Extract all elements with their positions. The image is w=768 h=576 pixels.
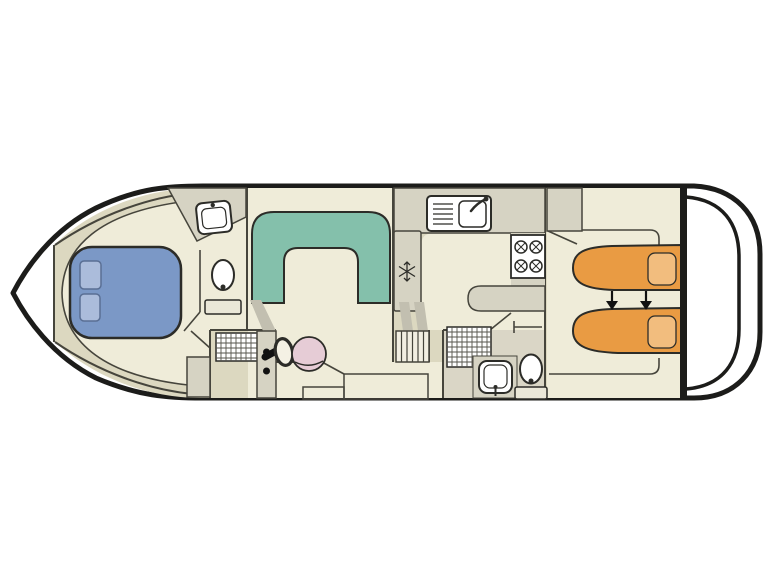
pillow-icon [648,316,676,348]
galley-peninsula [468,286,545,311]
pillow-icon [80,261,101,289]
pillow-icon [80,294,100,321]
stove-burner-icon [511,235,545,278]
pillow-icon [648,253,676,285]
side-door [257,331,276,398]
instrument-panel-icon [216,333,258,361]
bow-cabin [70,247,181,338]
transom-wall [680,186,687,398]
washbasin-icon [196,200,233,234]
corridor-floor [393,362,447,398]
wardrobe-icon [547,188,582,231]
washbasin-icon [473,356,517,398]
galley-sink-icon [427,196,491,231]
boat-floorplan-diagram [0,0,768,576]
helm-cabinet [187,357,210,397]
